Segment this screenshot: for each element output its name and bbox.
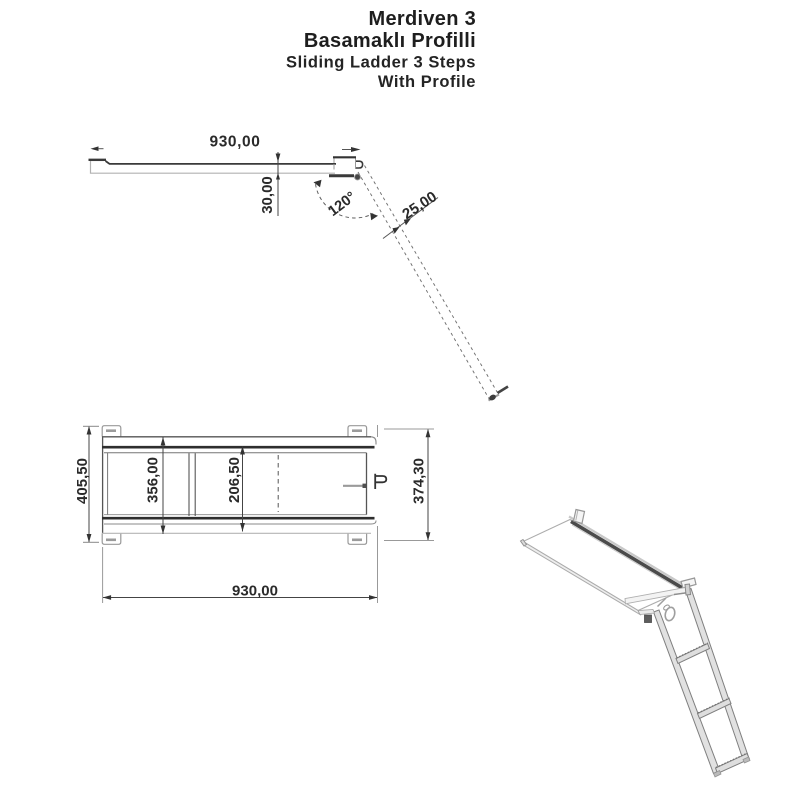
svg-text:120°: 120°: [326, 189, 360, 220]
svg-text:30,00: 30,00: [259, 176, 276, 214]
svg-text:930,00: 930,00: [232, 583, 278, 600]
svg-text:405,50: 405,50: [74, 458, 91, 504]
svg-text:25,00: 25,00: [399, 188, 440, 223]
svg-text:Basamaklı Profilli: Basamaklı Profilli: [304, 30, 476, 52]
svg-text:356,00: 356,00: [145, 457, 162, 503]
svg-text:With Profile: With Profile: [378, 73, 476, 91]
svg-text:930,00: 930,00: [209, 134, 260, 151]
svg-text:206,50: 206,50: [226, 457, 243, 503]
svg-text:Merdiven 3: Merdiven 3: [369, 8, 476, 30]
svg-text:Sliding Ladder 3 Steps: Sliding Ladder 3 Steps: [286, 54, 476, 72]
svg-text:374,30: 374,30: [411, 458, 428, 504]
